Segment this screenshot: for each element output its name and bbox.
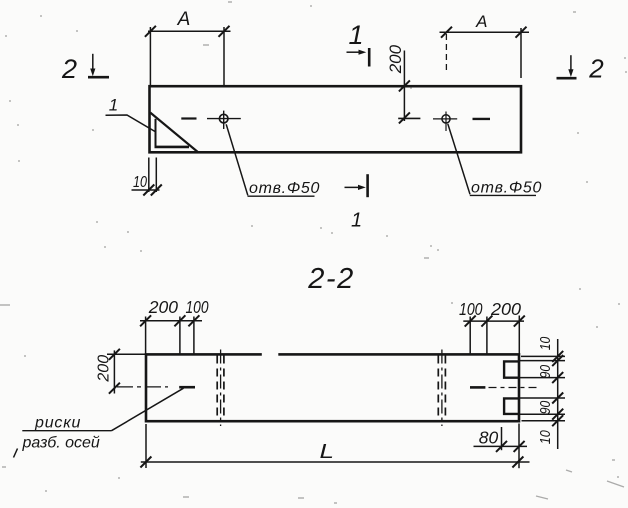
svg-text:1: 1 [351,210,362,232]
svg-text:2: 2 [588,54,604,84]
svg-text:A: A [475,12,487,31]
svg-text:200: 200 [490,299,521,319]
svg-text:риски: риски [34,415,81,432]
svg-text:100: 100 [186,297,209,317]
svg-text:отв.Φ50: отв.Φ50 [249,180,320,197]
svg-text:80: 80 [479,428,499,448]
svg-text:разб. осей: разб. осей [22,435,100,452]
svg-text:1: 1 [109,95,118,114]
svg-text:2-2: 2-2 [307,263,354,295]
svg-text:10: 10 [537,336,554,350]
svg-text:2: 2 [61,54,77,84]
svg-text:200: 200 [386,44,405,74]
svg-text:200: 200 [148,297,178,317]
svg-text:100: 100 [459,299,483,319]
svg-text:10: 10 [537,430,554,445]
svg-text:200: 200 [95,355,112,383]
svg-text:90: 90 [537,400,554,414]
svg-text:1: 1 [348,20,363,50]
svg-text:10: 10 [133,174,147,191]
svg-text:отв.Φ50: отв.Φ50 [471,180,542,197]
svg-text:L: L [320,441,335,463]
svg-text:A: A [177,9,191,30]
svg-text:90: 90 [537,364,554,378]
